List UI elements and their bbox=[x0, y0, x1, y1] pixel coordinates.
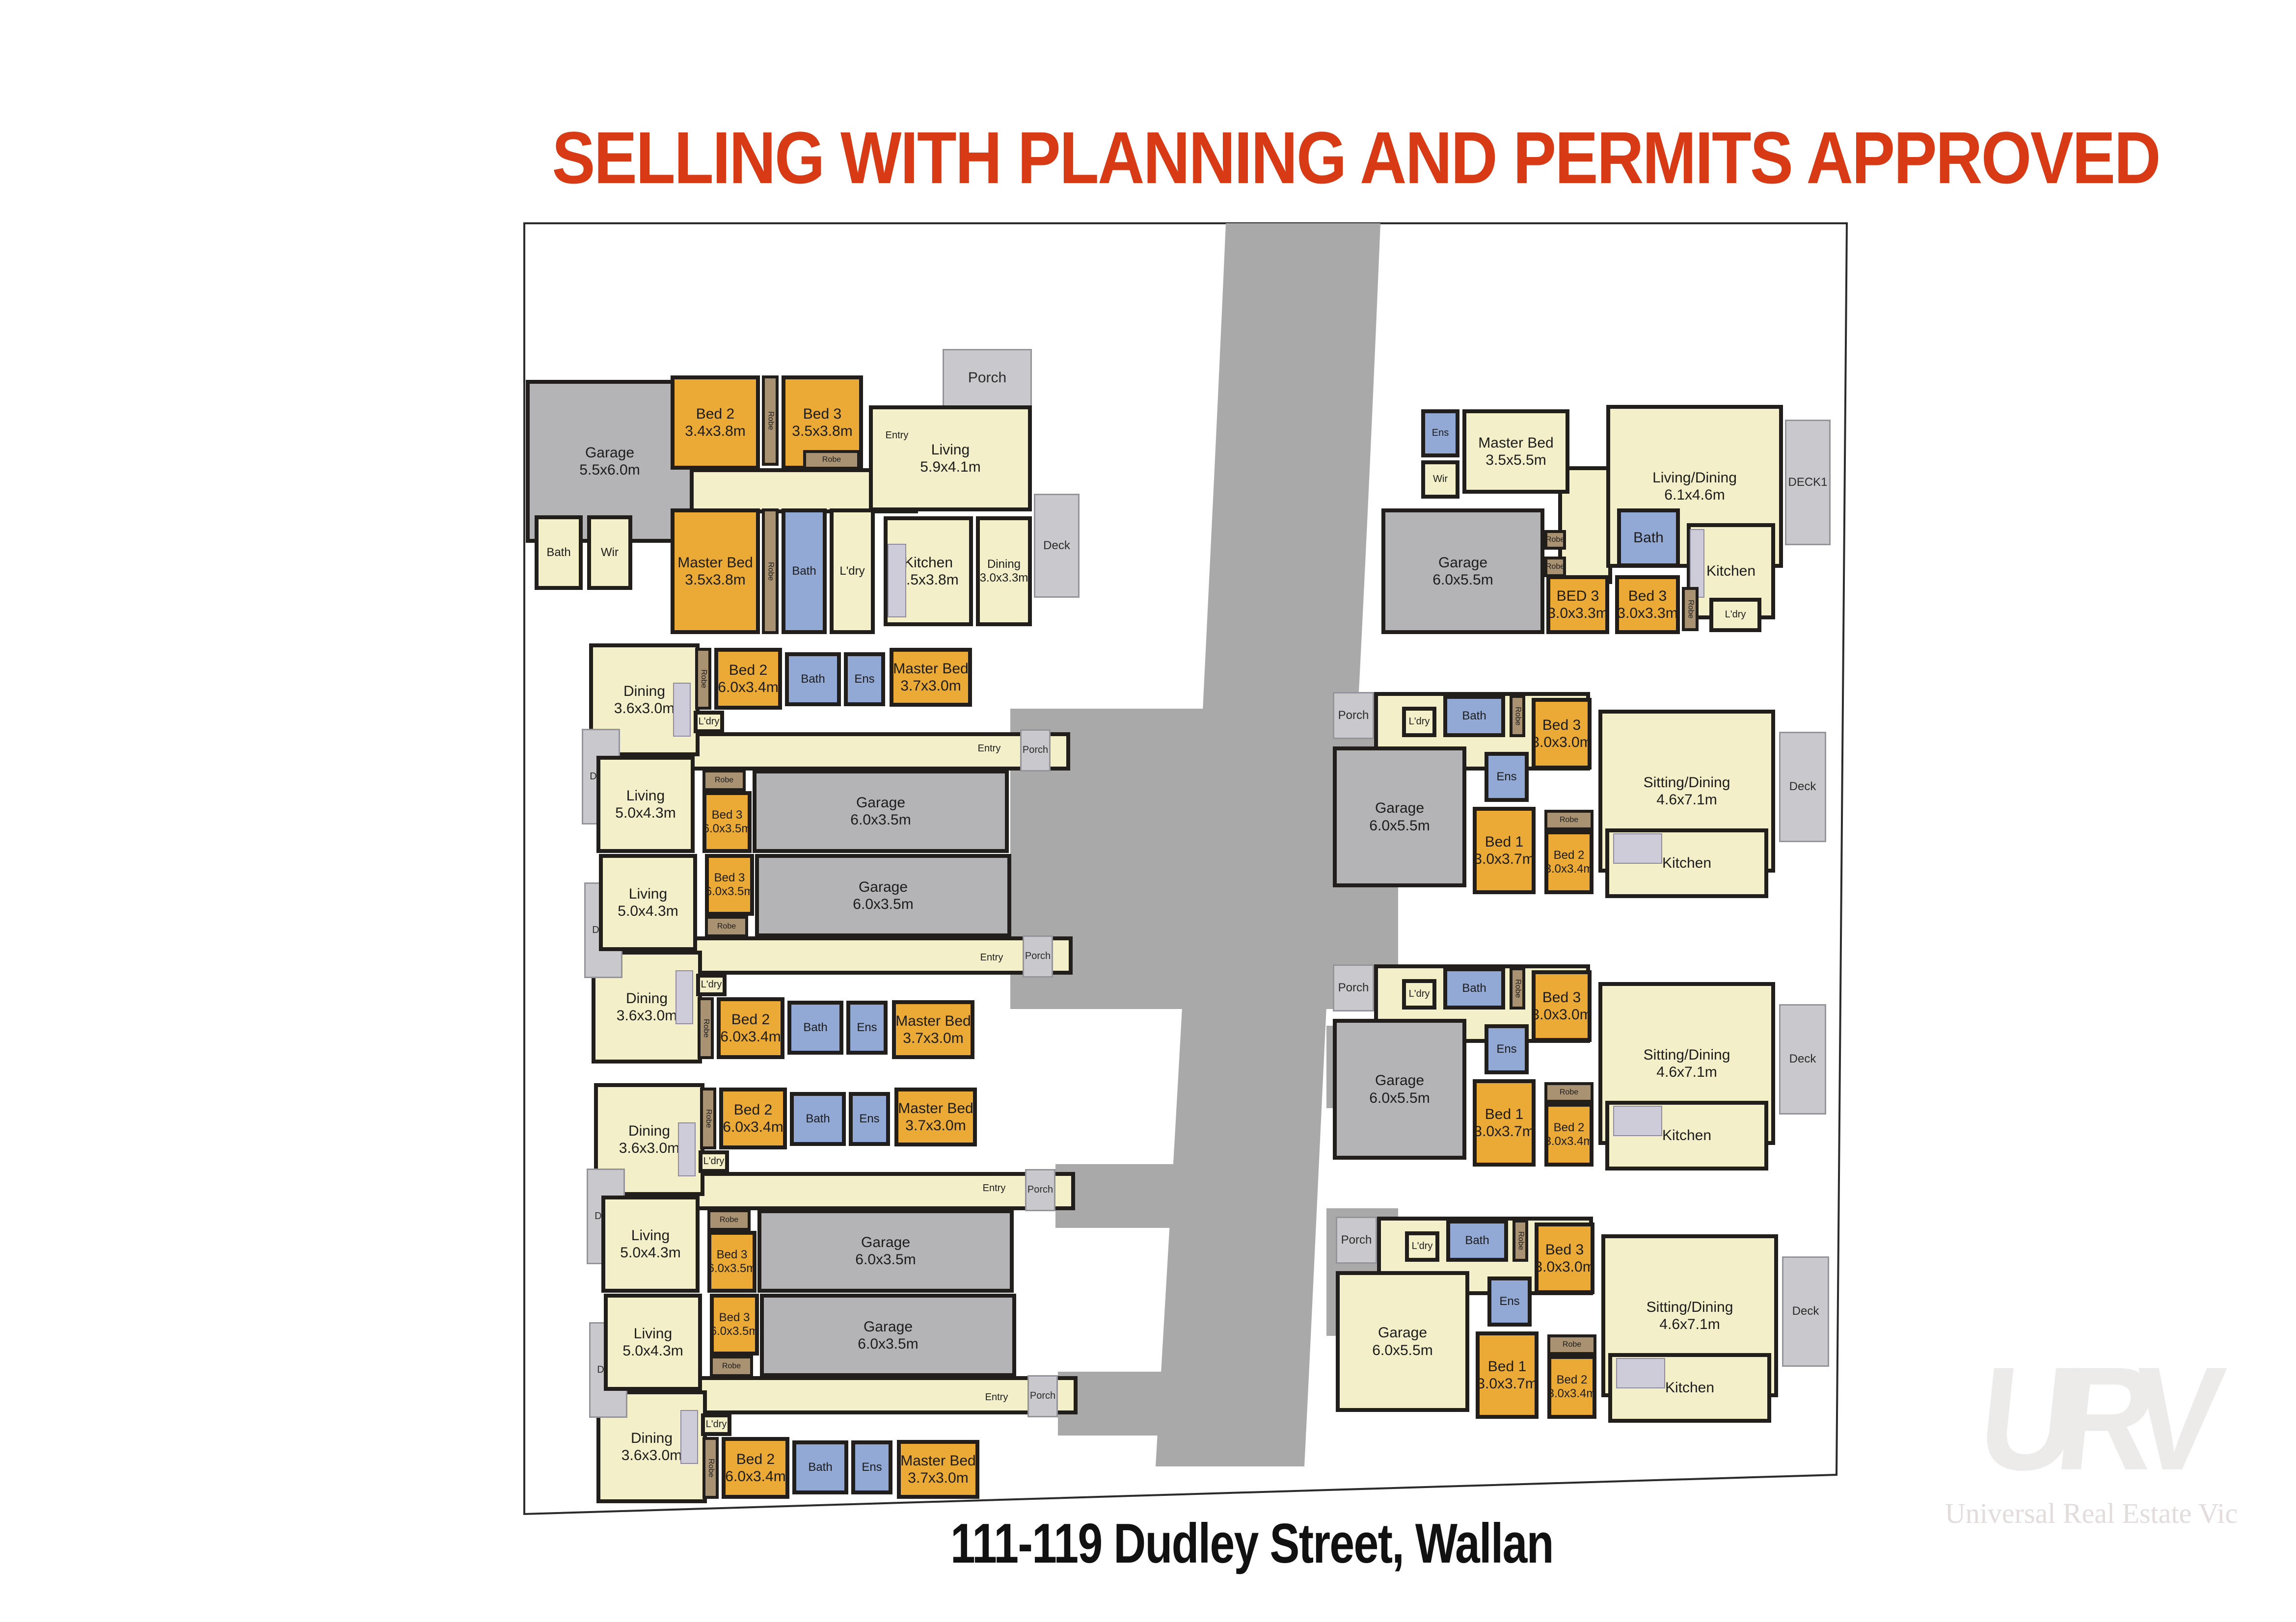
robe-bed3-room: Robe bbox=[1510, 695, 1525, 737]
living-room: Living5.0x4.3m bbox=[599, 854, 697, 951]
living-room: Living5.0x4.3m bbox=[601, 1196, 700, 1293]
robe-mid-room: Robe bbox=[762, 375, 779, 466]
master-bed-room: Master Bed3.7x3.0m bbox=[892, 1000, 974, 1059]
deck-room: Deck bbox=[1779, 732, 1826, 842]
garage-room: Garage6.0x5.5m bbox=[1333, 1019, 1466, 1160]
dining-room: Dining3.0x3.3m bbox=[976, 516, 1032, 626]
robe-bed3-room: Robe bbox=[1513, 1220, 1528, 1262]
garage-room: Garage6.0x3.5m bbox=[757, 1209, 1014, 1293]
deck-room: Deck bbox=[1779, 1004, 1826, 1115]
entry-room: Entry bbox=[962, 943, 1021, 973]
master-bed-room: Master Bed3.7x3.0m bbox=[890, 648, 972, 707]
porch-room: Porch bbox=[1027, 1375, 1058, 1417]
entry-room: Entry bbox=[967, 1383, 1026, 1412]
porch-room: Porch bbox=[1020, 729, 1051, 771]
garage-room: Garage6.0x5.5m bbox=[1381, 508, 1544, 634]
ldry-room: L'dry bbox=[701, 1413, 731, 1436]
page-title: SELLING WITH PLANNING AND PERMITS APPROV… bbox=[552, 115, 1951, 200]
robe-bed3-room: Robe bbox=[1510, 967, 1525, 1010]
bed3-b-room: Bed 33.0x3.3m bbox=[1615, 575, 1680, 634]
bath-room: Bath bbox=[782, 508, 827, 634]
bed3-room: Bed 33.0x3.0m bbox=[1535, 1223, 1594, 1294]
bath-2-room: Bath bbox=[535, 515, 583, 590]
bed3-room: Bed 36.0x3.5m bbox=[707, 1231, 756, 1293]
entry-room: Entry bbox=[870, 421, 924, 451]
dining-counter bbox=[680, 1410, 698, 1464]
watermark: URV Universal Real Estate Vic bbox=[1880, 1345, 2296, 1530]
bath-room: Bath bbox=[787, 1001, 843, 1055]
porch-room: Porch bbox=[1336, 1217, 1377, 1264]
bed1-room: Bed 13.0x3.7m bbox=[1473, 807, 1536, 894]
porch-room: Porch bbox=[1023, 935, 1053, 978]
ldry-room: L'dry bbox=[1709, 598, 1761, 632]
bed3-room: Bed 36.0x3.5m bbox=[702, 791, 752, 853]
ens-room: Ens bbox=[1485, 1024, 1529, 1074]
dining-counter bbox=[675, 970, 693, 1024]
kitchen-counter bbox=[1616, 1358, 1665, 1388]
robe-bed2-room: Robe bbox=[1547, 1334, 1596, 1355]
deck-room: Deck bbox=[1034, 494, 1080, 598]
ens-room: Ens bbox=[844, 652, 885, 706]
agency-tagline: Universal Real Estate Vic bbox=[1880, 1497, 2296, 1530]
garage-room: Garage6.0x5.5m bbox=[1336, 1271, 1469, 1412]
deck1-room: DECK1 bbox=[1785, 420, 1831, 545]
bed3-room: Bed 33.0x3.0m bbox=[1532, 970, 1592, 1042]
ens-room: Ens bbox=[849, 1092, 890, 1146]
bed3-room: Bed 36.0x3.5m bbox=[710, 1294, 759, 1356]
bed3-a-room: BED 33.0x3.3m bbox=[1546, 575, 1609, 634]
bath-room: Bath bbox=[790, 1092, 846, 1146]
master-bed-room: Master Bed3.5x3.8m bbox=[671, 508, 760, 634]
robe-1-room: Robe bbox=[1544, 530, 1566, 550]
bed2-room: Bed 26.0x3.4m bbox=[722, 1437, 789, 1499]
ldry-room: L'dry bbox=[699, 1150, 729, 1173]
address-title: 111-119 Dudley Street, Wallan bbox=[938, 1512, 1566, 1576]
robe-bed2-room: Robe bbox=[700, 1088, 716, 1149]
robe-bed2-room: Robe bbox=[1544, 1082, 1594, 1103]
ldry-room: L'dry bbox=[1402, 979, 1436, 1010]
robe-2-room: Robe bbox=[1544, 557, 1566, 577]
robe-master-room: Robe bbox=[762, 508, 779, 634]
porch-room: Porch bbox=[1333, 692, 1374, 739]
robe-bed3-room: Robe bbox=[705, 916, 748, 937]
robe-bed3-room: Robe bbox=[702, 770, 746, 791]
ldry-room: L'dry bbox=[830, 508, 875, 634]
ens-room: Ens bbox=[846, 1001, 888, 1055]
ens-room: Ens bbox=[1487, 1276, 1532, 1327]
entry-room: Entry bbox=[960, 734, 1019, 764]
robe-bed2-room: Robe bbox=[702, 1437, 719, 1499]
bed3-room: Bed 33.0x3.0m bbox=[1532, 698, 1592, 770]
bath-room: Bath bbox=[1443, 695, 1505, 737]
porch-room: Porch bbox=[1333, 964, 1374, 1011]
bed2-room: Bed 23.0x3.4m bbox=[1544, 1103, 1594, 1167]
garage-room: Garage6.0x5.5m bbox=[1333, 746, 1466, 887]
kitchen-counter bbox=[888, 544, 906, 617]
bed1-room: Bed 13.0x3.7m bbox=[1473, 1079, 1536, 1167]
robe-bed3-room: Robe bbox=[710, 1356, 753, 1377]
ldry-room: L'dry bbox=[694, 711, 724, 733]
deck-room: Deck bbox=[1782, 1256, 1829, 1367]
bed2-room: Bed 26.0x3.4m bbox=[717, 997, 784, 1059]
bath-room: Bath bbox=[792, 1440, 848, 1494]
robe-3-room: Robe bbox=[1682, 587, 1699, 631]
ens-room: Ens bbox=[851, 1440, 892, 1494]
garage-room: Garage6.0x3.5m bbox=[755, 854, 1011, 937]
living-room: Living5.0x4.3m bbox=[596, 756, 695, 853]
master-bed-room: Master Bed3.5x5.5m bbox=[1462, 409, 1569, 494]
master-bed-room: Master Bed3.7x3.0m bbox=[894, 1088, 977, 1146]
bath-room: Bath bbox=[785, 652, 841, 706]
bath-room: Bath bbox=[1446, 1220, 1508, 1262]
bed2-room: Bed 23.0x3.4m bbox=[1547, 1355, 1596, 1419]
dining-counter bbox=[673, 683, 691, 737]
bath-room: Bath bbox=[1617, 508, 1680, 567]
kitchen-counter bbox=[1613, 833, 1662, 864]
living-room: Living5.0x4.3m bbox=[604, 1294, 702, 1391]
bed2-room: Bed 23.4x3.8m bbox=[671, 375, 760, 470]
porch-room: Porch bbox=[943, 349, 1032, 407]
ldry-room: L'dry bbox=[696, 974, 727, 996]
ens-room: Ens bbox=[1421, 409, 1459, 457]
ens-room: Ens bbox=[1485, 752, 1529, 802]
porch-room: Porch bbox=[1025, 1169, 1055, 1211]
kitchen-counter bbox=[1613, 1106, 1662, 1136]
bed3-room: Bed 36.0x3.5m bbox=[705, 854, 754, 916]
garage-room: Garage6.0x3.5m bbox=[753, 770, 1009, 853]
bed1-room: Bed 13.0x3.7m bbox=[1476, 1331, 1539, 1419]
robe-bed2-room: Robe bbox=[698, 997, 714, 1059]
robe-bed2-room: Robe bbox=[695, 648, 711, 710]
bath-room: Bath bbox=[1443, 967, 1505, 1010]
wir-room: Wir bbox=[1421, 460, 1459, 499]
bed2-room: Bed 26.0x3.4m bbox=[719, 1088, 787, 1149]
robe-bed3-room: Robe bbox=[803, 450, 860, 470]
robe-bed2-room: Robe bbox=[1544, 810, 1594, 830]
garage-room: Garage6.0x3.5m bbox=[760, 1294, 1016, 1377]
master-bed-room: Master Bed3.7x3.0m bbox=[897, 1440, 979, 1499]
ldry-room: L'dry bbox=[1405, 1231, 1439, 1262]
bed2-room: Bed 26.0x3.4m bbox=[714, 648, 782, 710]
dining-counter bbox=[678, 1122, 696, 1176]
agency-logo: URV bbox=[1890, 1345, 2294, 1492]
wir-room: Wir bbox=[587, 515, 632, 590]
robe-bed3-room: Robe bbox=[707, 1209, 751, 1231]
bed2-room: Bed 23.0x3.4m bbox=[1544, 830, 1594, 894]
entry-room: Entry bbox=[965, 1174, 1024, 1203]
ldry-room: L'dry bbox=[1402, 707, 1436, 737]
